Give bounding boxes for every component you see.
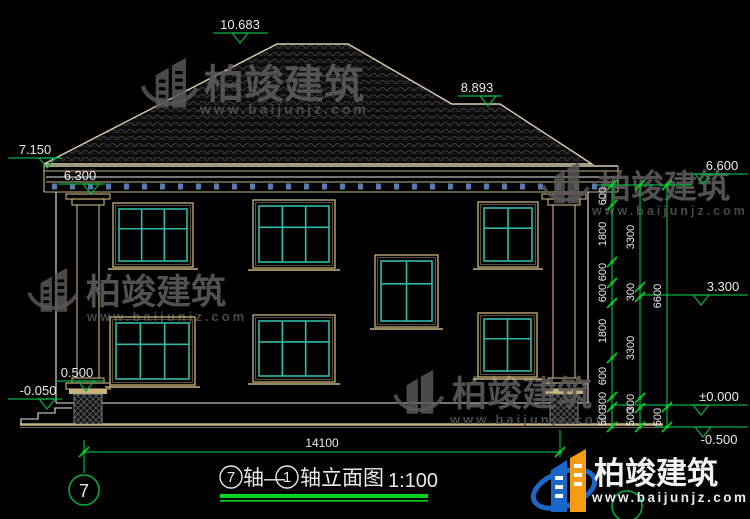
dentil [358,184,363,190]
level-label: 6.600 [706,158,739,173]
dentil [376,184,381,190]
dentil [322,184,327,190]
dentil [250,184,255,190]
window [473,313,542,379]
level-label: ±0.000 [699,389,739,404]
level-label: 3.300 [707,279,740,294]
dentil [520,184,525,190]
level-label: -0.500 [701,432,738,447]
level-label: 7.150 [19,142,52,157]
svg-text:7: 7 [79,481,89,501]
dentil [340,184,345,190]
level-label: 6.300 [64,168,97,183]
dentil [232,184,237,190]
cad-elevation-drawing: 柏竣建筑 www.baijunjz.com 柏竣建筑 www.baijunjz.… [0,0,750,519]
dimension-label: 500 [625,408,637,426]
pedestal [74,394,102,424]
dentil [412,184,417,190]
title-scale: 1:100 [388,470,438,492]
window [473,202,543,269]
logo-url-text: www.baijunjz.com [591,490,749,505]
overall-width-dimension: 14100 [305,436,339,450]
dentil [286,184,291,190]
svg-text:7: 7 [227,469,235,486]
dimension-label: 600 [597,187,609,205]
dentil [196,184,201,190]
dimension-label: 1800 [597,319,609,343]
dentil [178,184,183,190]
dentil [268,184,273,190]
dentil [466,184,471,190]
dimension-label: 600 [597,263,609,281]
dimension-label: 300 [597,392,609,410]
svg-text:1: 1 [283,469,291,486]
watermark-url: www.baijunjz.com [199,101,369,117]
dimension-label: 600 [597,367,609,385]
level-label: 0.500 [61,365,94,380]
watermark-url: www.baijunjz.com [449,412,610,427]
dimension-label: 600 [597,284,609,302]
dentil [484,184,489,190]
pedestal-cap [69,389,107,394]
watermark-brand: 柏竣建筑 [452,374,592,414]
logo-brand-text: 柏竣建筑 [594,456,718,491]
elevation-canvas: 柏竣建筑 www.baijunjz.com 柏竣建筑 www.baijunjz.… [0,0,750,519]
dentil [304,184,309,190]
dentil [160,184,165,190]
dimension-label: 300 [625,283,637,301]
dentil [142,184,147,190]
dimension-label: 3300 [625,336,637,360]
dentil [124,184,129,190]
window [370,255,443,329]
dentil [394,184,399,190]
dimension-label: 6600 [652,284,664,308]
level-label: 8.893 [461,80,494,95]
logo-tower-orange [570,449,586,512]
level-label: -0.050 [20,383,57,398]
dimension-label: 500 [597,408,609,426]
dentil [106,184,111,190]
drawing-title: 7 轴— 1 轴立面图 1:100 [220,466,438,502]
title-underline [220,494,428,498]
dentil [214,184,219,190]
dentil [448,184,453,190]
dimension-label: 3300 [625,225,637,249]
dimension-label: 1800 [597,222,609,246]
dentil [52,184,57,190]
level-label: 10.683 [220,17,260,32]
dentil [430,184,435,190]
dimension-label: 500 [652,408,664,426]
watermark-url: www.baijunjz.com [591,204,748,218]
title-text-2: 轴立面图 [300,467,384,490]
watermark-brand: 柏竣建筑 [86,272,226,312]
dentil [502,184,507,190]
